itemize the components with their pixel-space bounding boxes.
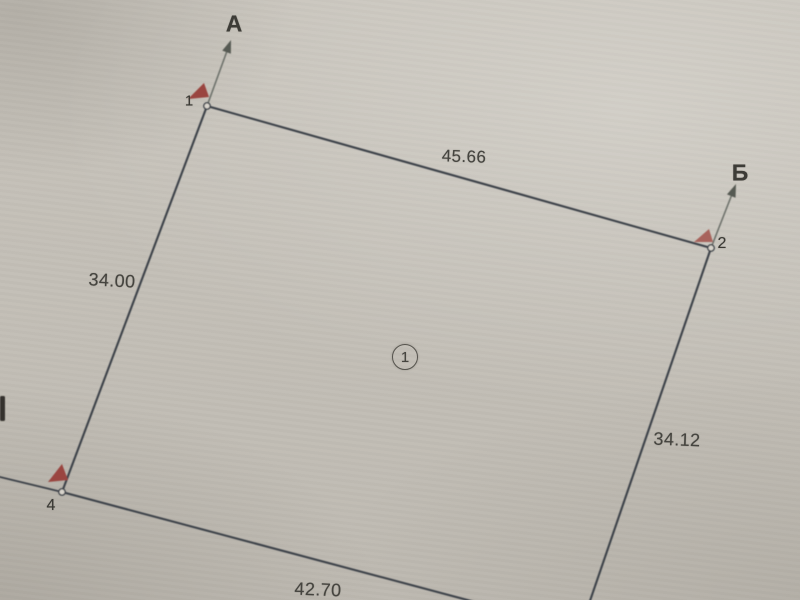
dimension-right: 34.12 [653,429,701,452]
dimension-top: 45.66 [441,146,486,168]
corner-marker-p4 [59,489,65,495]
direction-arrow-line-a [207,50,227,106]
point-label-4: 4 [47,497,56,515]
boundary-line-3 [62,106,207,492]
direction-label-a: А [226,11,243,38]
point-label-1: 1 [185,93,193,110]
corner-flag-icon-2 [48,464,68,482]
clipped-letter-fragment [0,396,5,421]
parcel-number: 1 [401,349,409,366]
parcel-number-badge: 1 [392,344,418,370]
dimension-bottom: 42.70 [294,579,342,600]
direction-label-b: Б [732,160,749,187]
scanned-plan-page: А Б 1 2 4 45.66 34.00 34.12 42.70 1 [0,0,800,600]
direction-arrow-head-a [222,40,231,54]
boundary-line-0 [207,106,711,248]
corner-marker-p1 [204,103,210,109]
corner-flag-icon-1 [694,229,713,242]
dimension-left: 34.00 [88,269,136,292]
corner-marker-p2 [708,245,714,251]
point-label-2: 2 [718,235,727,253]
parcel-drawing [0,0,800,600]
boundary-line-1 [580,248,711,600]
